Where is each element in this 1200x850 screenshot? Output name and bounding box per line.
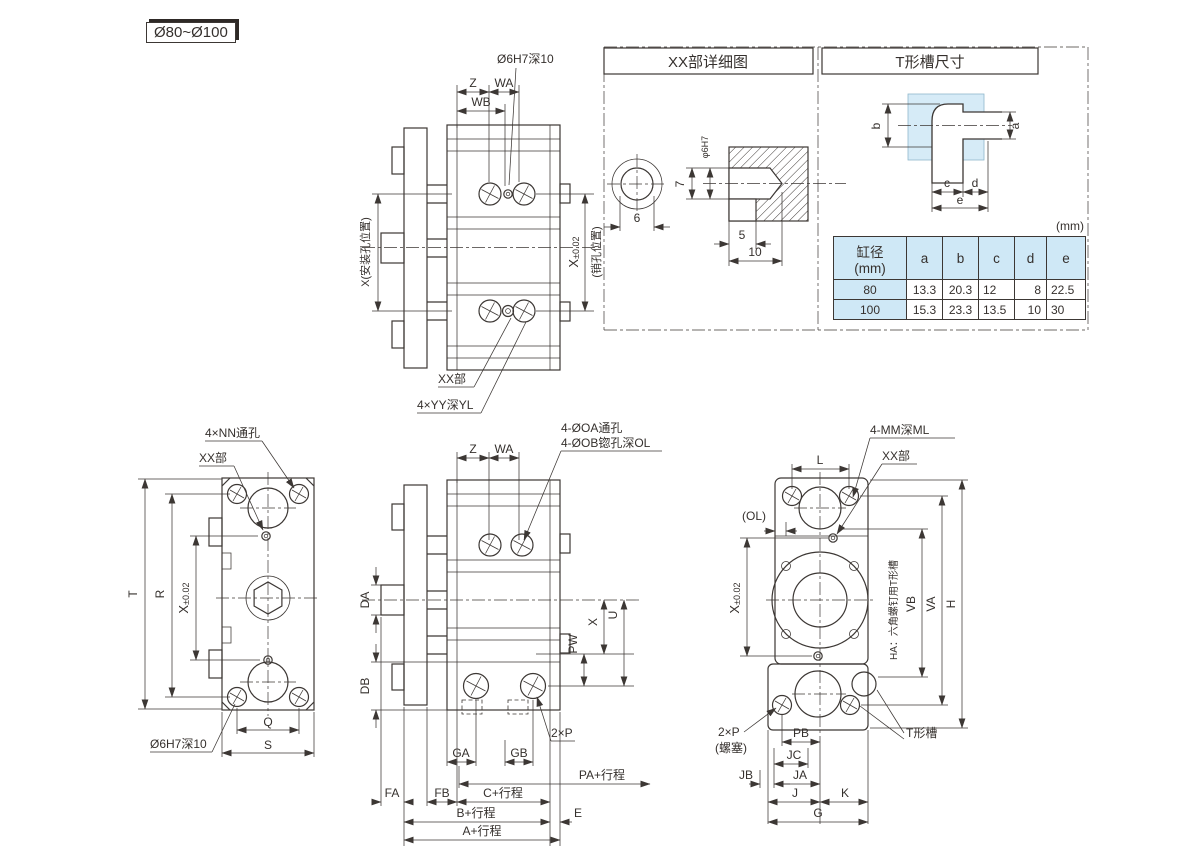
port-callout-2: (螺塞) (715, 740, 747, 755)
dim-label-b: b (869, 122, 883, 129)
nn-through-hole (290, 688, 309, 707)
dim-label-pa: PA+行程 (579, 767, 625, 782)
value-cell: 20.3 (943, 280, 979, 300)
dim-label-h: H (944, 600, 958, 609)
oa-callout: 4-ØOA通孔 (561, 421, 622, 435)
value-cell: 22.5 (1047, 280, 1086, 300)
xx-callout: XX部 (882, 448, 910, 463)
pin-dim-note: (销孔位置) (589, 226, 603, 277)
dim-label-5: 5 (739, 228, 746, 242)
value-cell: 23.3 (943, 300, 979, 320)
dim-label-ga: GA (452, 746, 469, 760)
unit-note: (mm) (833, 219, 1084, 233)
pin-hole (814, 652, 822, 660)
dim-label-t: T (126, 590, 140, 598)
t-slot-view: b a c d e (869, 94, 1022, 212)
side-view: Z WA 4-ØOA通孔 4-ØOB锪孔深OL DA DB X U PW 2×P (358, 421, 662, 846)
mm-screw-hole (840, 487, 859, 506)
pin-hole (262, 532, 270, 540)
bore-header-text: 缸径 (857, 245, 884, 260)
port-plug (841, 696, 860, 715)
dim-label-z: Z (469, 442, 476, 456)
oa-hole (511, 534, 533, 556)
dim-label-q: Q (263, 715, 272, 729)
header-cell-bore: 缸径 (mm) (834, 237, 907, 280)
bore-unit-text: (mm) (854, 261, 885, 276)
oa-hole (479, 534, 501, 556)
table-row: 100 15.3 23.3 13.5 10 30 (834, 300, 1086, 320)
dim-label-7: 7 (673, 180, 687, 187)
t-slot-callout: T形槽 (906, 726, 937, 740)
xx-callout: XX部 (438, 371, 466, 386)
header-cell-b: b (943, 237, 979, 280)
t-slot-table: 缸径 (mm) a b c d e 80 13.3 20.3 12 8 22.5… (833, 236, 1086, 320)
dim-label-a: A+行程 (462, 823, 501, 838)
value-cell: 15.3 (907, 300, 943, 320)
pin-dim-label: X±0.02 (176, 582, 191, 613)
table-row: 80 13.3 20.3 12 8 22.5 (834, 280, 1086, 300)
dim-label-wa: WA (495, 442, 514, 456)
dim-label-l: L (817, 453, 824, 467)
value-cell: 13.3 (907, 280, 943, 300)
top-side-view: Z WA WB Ø6H7深10 X(安装孔位置) X±0.02 (销孔位置) X… (358, 52, 603, 413)
dim-label-6: 6 (634, 211, 641, 225)
value-cell: 30 (1047, 300, 1086, 320)
nn-callout: 4×NN通孔 (205, 426, 260, 440)
mount-hole-dim-label: X(安装孔位置) (358, 217, 372, 287)
dim-label-r: R (153, 589, 167, 598)
dim-label-c: c (944, 176, 950, 190)
bore-range-badge: Ø80~Ø100 (146, 22, 236, 43)
pin-hole-note: Ø6H7深10 (150, 737, 207, 751)
table-header-row: 缸径 (mm) a b c d e (834, 237, 1086, 280)
mm-screw-hole (783, 487, 802, 506)
ha-note: HA：六角螺钉用T形槽 (887, 560, 900, 660)
dim-label-pw: PW (566, 634, 580, 654)
port-plug (773, 696, 792, 715)
dim-label-ja: JA (793, 768, 807, 782)
port-plug (464, 674, 489, 699)
pin-hole (503, 306, 514, 317)
dim-label-10: 10 (748, 245, 762, 259)
dim-label-d: d (972, 176, 979, 190)
dim-label-gb: GB (510, 746, 527, 760)
mm-callout: 4-MM深ML (870, 423, 930, 437)
mount-screw-hole (513, 183, 535, 205)
dim-label-wa: WA (495, 76, 514, 90)
value-cell: 8 (1015, 280, 1047, 300)
mount-screw-hole (479, 183, 501, 205)
mount-screw-hole (479, 300, 501, 322)
dim-label-wb: WB (471, 95, 490, 109)
dim-label-fb: FB (434, 786, 449, 800)
dim-label-k: K (841, 786, 849, 800)
dim-label-a: a (1008, 122, 1022, 129)
port-callout: 2×P (718, 725, 740, 739)
value-cell: 100 (834, 300, 907, 320)
xx-callout: XX部 (199, 450, 227, 465)
header-cell-c: c (979, 237, 1015, 280)
nn-through-hole (290, 485, 309, 504)
pin-hole-note: Ø6H7深10 (497, 52, 554, 66)
value-cell: 13.5 (979, 300, 1015, 320)
header-cell-d: d (1015, 237, 1047, 280)
dim-label-da: DA (358, 592, 372, 609)
pin-hole (504, 190, 512, 198)
dim-label-e: e (957, 193, 964, 207)
dim-label-dia: φ6H7 (700, 136, 710, 158)
header-cell-a: a (907, 237, 943, 280)
port-plug (521, 674, 546, 699)
xx-detail-view: 6 7 φ6H7 5 10 (604, 136, 846, 266)
pin-hole (829, 534, 837, 542)
header-cell-e: e (1047, 237, 1086, 280)
dim-label-fa: FA (385, 786, 400, 800)
dim-label-g: G (813, 806, 822, 820)
pin-dim-label: X±0.02 (566, 236, 581, 267)
piston-rod-end (381, 233, 404, 263)
t-slot-hole (852, 672, 876, 696)
bore-range-label: Ø80~Ø100 (154, 24, 228, 41)
dim-label-b: B+行程 (456, 805, 495, 820)
yy-callout: 4×YY深YL (417, 398, 474, 412)
dim-label-c: C+行程 (483, 785, 523, 800)
ol-note: (OL) (742, 509, 766, 523)
technical-drawing: Z WA WB Ø6H7深10 X(安装孔位置) X±0.02 (销孔位置) X… (0, 0, 1200, 850)
dim-label-z: Z (469, 76, 476, 90)
ob-callout: 4-ØOB锪孔深OL (561, 435, 651, 450)
xx-detail-title: XX部详细图 (668, 54, 748, 71)
t-slot-title: T形槽尺寸 (895, 54, 964, 71)
dim-label-x: X (586, 618, 600, 626)
value-cell: 12 (979, 280, 1015, 300)
bottom-cap-outline (768, 664, 868, 730)
dim-label-vb: VB (904, 596, 918, 612)
port-callout: 2×P (551, 726, 573, 740)
value-cell: 10 (1015, 300, 1047, 320)
dim-label-s: S (264, 738, 272, 752)
front-view: 4×NN通孔 XX部 T R X±0.02 Ø6H7深10 Q S (126, 426, 320, 757)
dim-label-pb: PB (793, 726, 809, 740)
nn-through-hole (228, 688, 247, 707)
value-cell: 80 (834, 280, 907, 300)
end-view: L 4-MM深ML XX部 (OL) X±0.02 HA：六角螺钉用T形槽 VB… (715, 423, 968, 824)
mount-screw-hole (513, 300, 535, 322)
dim-label-db: DB (358, 678, 372, 695)
dim-label-e: E (574, 806, 582, 820)
dim-label-jc: JC (787, 748, 802, 762)
dim-label-va: VA (924, 596, 938, 611)
dim-label-u: U (606, 611, 620, 620)
pin-dim-label: X±0.02 (727, 582, 742, 613)
dim-label-j: J (792, 786, 798, 800)
cylinder-body (447, 480, 560, 710)
dim-label-jb: JB (739, 768, 753, 782)
datasheet-page: Z WA WB Ø6H7深10 X(安装孔位置) X±0.02 (销孔位置) X… (0, 0, 1200, 850)
